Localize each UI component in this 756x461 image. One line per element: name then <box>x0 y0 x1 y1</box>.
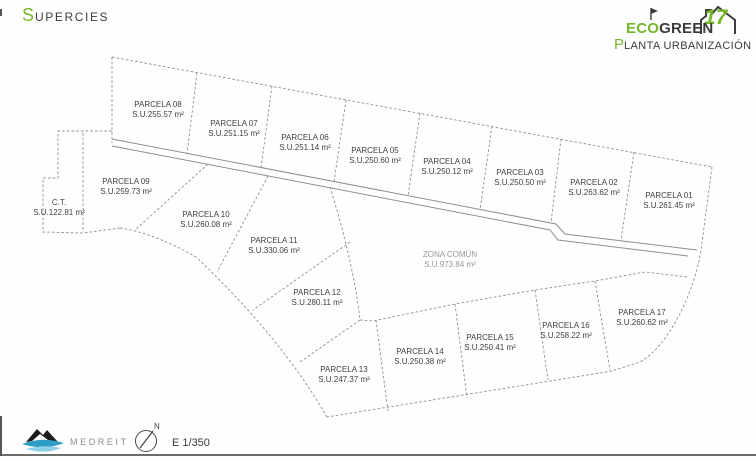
parcel-name: PARCELA 01 <box>643 191 695 201</box>
parcel-name: PARCELA 15 <box>464 333 516 343</box>
parcel-label: PARCELA 17S.U.260.62 m² <box>616 308 668 328</box>
parcel-label: PARCELA 07S.U.251.15 m² <box>208 119 260 139</box>
parcel-area: S.U.247.37 m² <box>318 375 370 385</box>
site-plan-drawing <box>0 0 756 456</box>
parcel-name: PARCELA 14 <box>394 347 446 357</box>
medreit-icon <box>18 420 70 456</box>
parcel-area: S.U.973.84 m² <box>423 260 477 270</box>
parcel-label: PARCELA 16S.U.258.22 m² <box>540 321 592 341</box>
parcel-area: S.U.250.60 m² <box>349 156 401 166</box>
parcel-label: PARCELA 12S.U.280.11 m² <box>292 288 343 308</box>
parcel-label: PARCELA 14S.U.250.38 m² <box>394 347 446 367</box>
parcel-name: PARCELA 08 <box>132 100 184 110</box>
parcel-name: PARCELA 02 <box>568 178 620 188</box>
scale-label: E 1/350 <box>172 437 210 449</box>
parcel-name: PARCELA 05 <box>349 146 401 156</box>
parcel-area: S.U.255.57 m² <box>132 110 184 120</box>
parcel-label: PARCELA 15S.U.250.41 m² <box>464 333 516 353</box>
parcel-area: S.U.251.14 m² <box>279 143 331 153</box>
parcel-area: S.U.250.50 m² <box>494 178 546 188</box>
parcel-area: S.U.263.62 m² <box>568 188 620 198</box>
medreit-logo: MEDREIT <box>18 420 148 456</box>
parcel-name: PARCELA 11 <box>248 236 300 246</box>
parcel-label: PARCELA 01S.U.261.45 m² <box>643 191 695 211</box>
scan-edge-mark <box>0 9 2 16</box>
compass-icon: N <box>130 418 174 456</box>
parcel-name: PARCELA 10 <box>180 210 232 220</box>
parcel-name: PARCELA 12 <box>292 288 343 298</box>
parcel-name: PARCELA 04 <box>421 157 473 167</box>
parcel-area: S.U.250.12 m² <box>421 167 473 177</box>
parcel-area: S.U.258.22 m² <box>540 331 592 341</box>
parcel-area: S.U.261.45 m² <box>643 201 695 211</box>
parcel-name: C.T. <box>33 198 85 208</box>
compass-north-label: N <box>154 422 160 431</box>
parcel-name: ZONA COMÚN <box>423 250 477 260</box>
parcel-label: PARCELA 02S.U.263.62 m² <box>568 178 620 198</box>
parcel-name: PARCELA 13 <box>318 365 370 375</box>
parcel-label: PARCELA 03S.U.250.50 m² <box>494 168 546 188</box>
parcel-label: PARCELA 13S.U.247.37 m² <box>318 365 370 385</box>
parcel-name: PARCELA 06 <box>279 133 331 143</box>
parcel-label: ZONA COMÚNS.U.973.84 m² <box>423 250 477 270</box>
parcel-name: PARCELA 03 <box>494 168 546 178</box>
parcel-name: PARCELA 07 <box>208 119 260 129</box>
parcel-name: PARCELA 09 <box>100 177 152 187</box>
parcel-area: S.U.250.41 m² <box>464 343 516 353</box>
scan-edge-left <box>0 416 2 456</box>
medreit-label: MEDREIT <box>70 437 129 447</box>
parcel-label: PARCELA 09S.U.259.73 m² <box>100 177 152 197</box>
parcel-label: PARCELA 10S.U.260.08 m² <box>180 210 232 230</box>
parcel-area: S.U.251.15 m² <box>208 129 260 139</box>
ct-label: C.T.S.U.122.81 m² <box>33 198 85 218</box>
parcel-name: PARCELA 16 <box>540 321 592 331</box>
parcel-area: S.U.280.11 m² <box>292 298 343 308</box>
parcel-area: S.U.260.62 m² <box>616 318 668 328</box>
parcel-label: PARCELA 11S.U.330.06 m² <box>248 236 300 256</box>
parcel-area: S.U.259.73 m² <box>100 187 152 197</box>
parcel-name: PARCELA 17 <box>616 308 668 318</box>
parcel-label: PARCELA 06S.U.251.14 m² <box>279 133 331 153</box>
parcel-label: PARCELA 08S.U.255.57 m² <box>132 100 184 120</box>
parcel-label: PARCELA 05S.U.250.60 m² <box>349 146 401 166</box>
parcel-area: S.U.330.06 m² <box>248 246 300 256</box>
parcel-label: PARCELA 04S.U.250.12 m² <box>421 157 473 177</box>
parcel-area: S.U.260.08 m² <box>180 220 232 230</box>
parcel-area: S.U.122.81 m² <box>33 208 85 218</box>
parcel-area: S.U.250.38 m² <box>394 357 446 367</box>
